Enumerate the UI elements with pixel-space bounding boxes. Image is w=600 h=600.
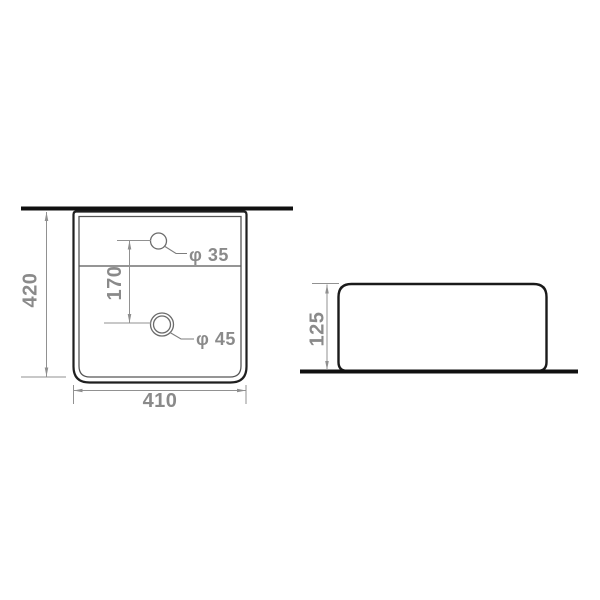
dim-125-arrow-up-icon [325, 285, 329, 294]
dim-420-arrow-up-icon [45, 212, 49, 221]
dim-410-label: 410 [143, 390, 178, 412]
faucet-hole-label: φ 35 [189, 245, 229, 265]
dim-170-arrow-up-icon [128, 241, 132, 250]
dim-420-arrow-down-icon [45, 368, 49, 377]
dim-420-label: 420 [20, 273, 42, 308]
dim-410-arrow-left-icon [74, 389, 83, 393]
basin-outer-outline [74, 212, 247, 383]
plan-view: 170 φ 35 φ 45 420 410 [20, 209, 294, 413]
dim-125-label: 125 [307, 312, 329, 347]
faucet-hole-leader-line [165, 247, 187, 254]
dim-410-arrow-right-icon [237, 389, 246, 393]
faucet-hole-circle [151, 233, 167, 249]
dim-125-arrow-down-icon [325, 361, 329, 370]
drain-hole-label: φ 45 [196, 329, 236, 349]
dim-170-label: 170 [104, 266, 126, 301]
technical-drawing-page: 170 φ 35 φ 45 420 410 [0, 0, 600, 600]
side-view: 125 [300, 284, 578, 372]
drain-hole-leader-line [170, 333, 194, 340]
drain-hole-inner-circle [154, 316, 171, 333]
basin-side-outline [339, 284, 547, 371]
basin-dimension-drawing: 170 φ 35 φ 45 420 410 [0, 0, 600, 600]
dim-170-arrow-down-icon [128, 314, 132, 323]
